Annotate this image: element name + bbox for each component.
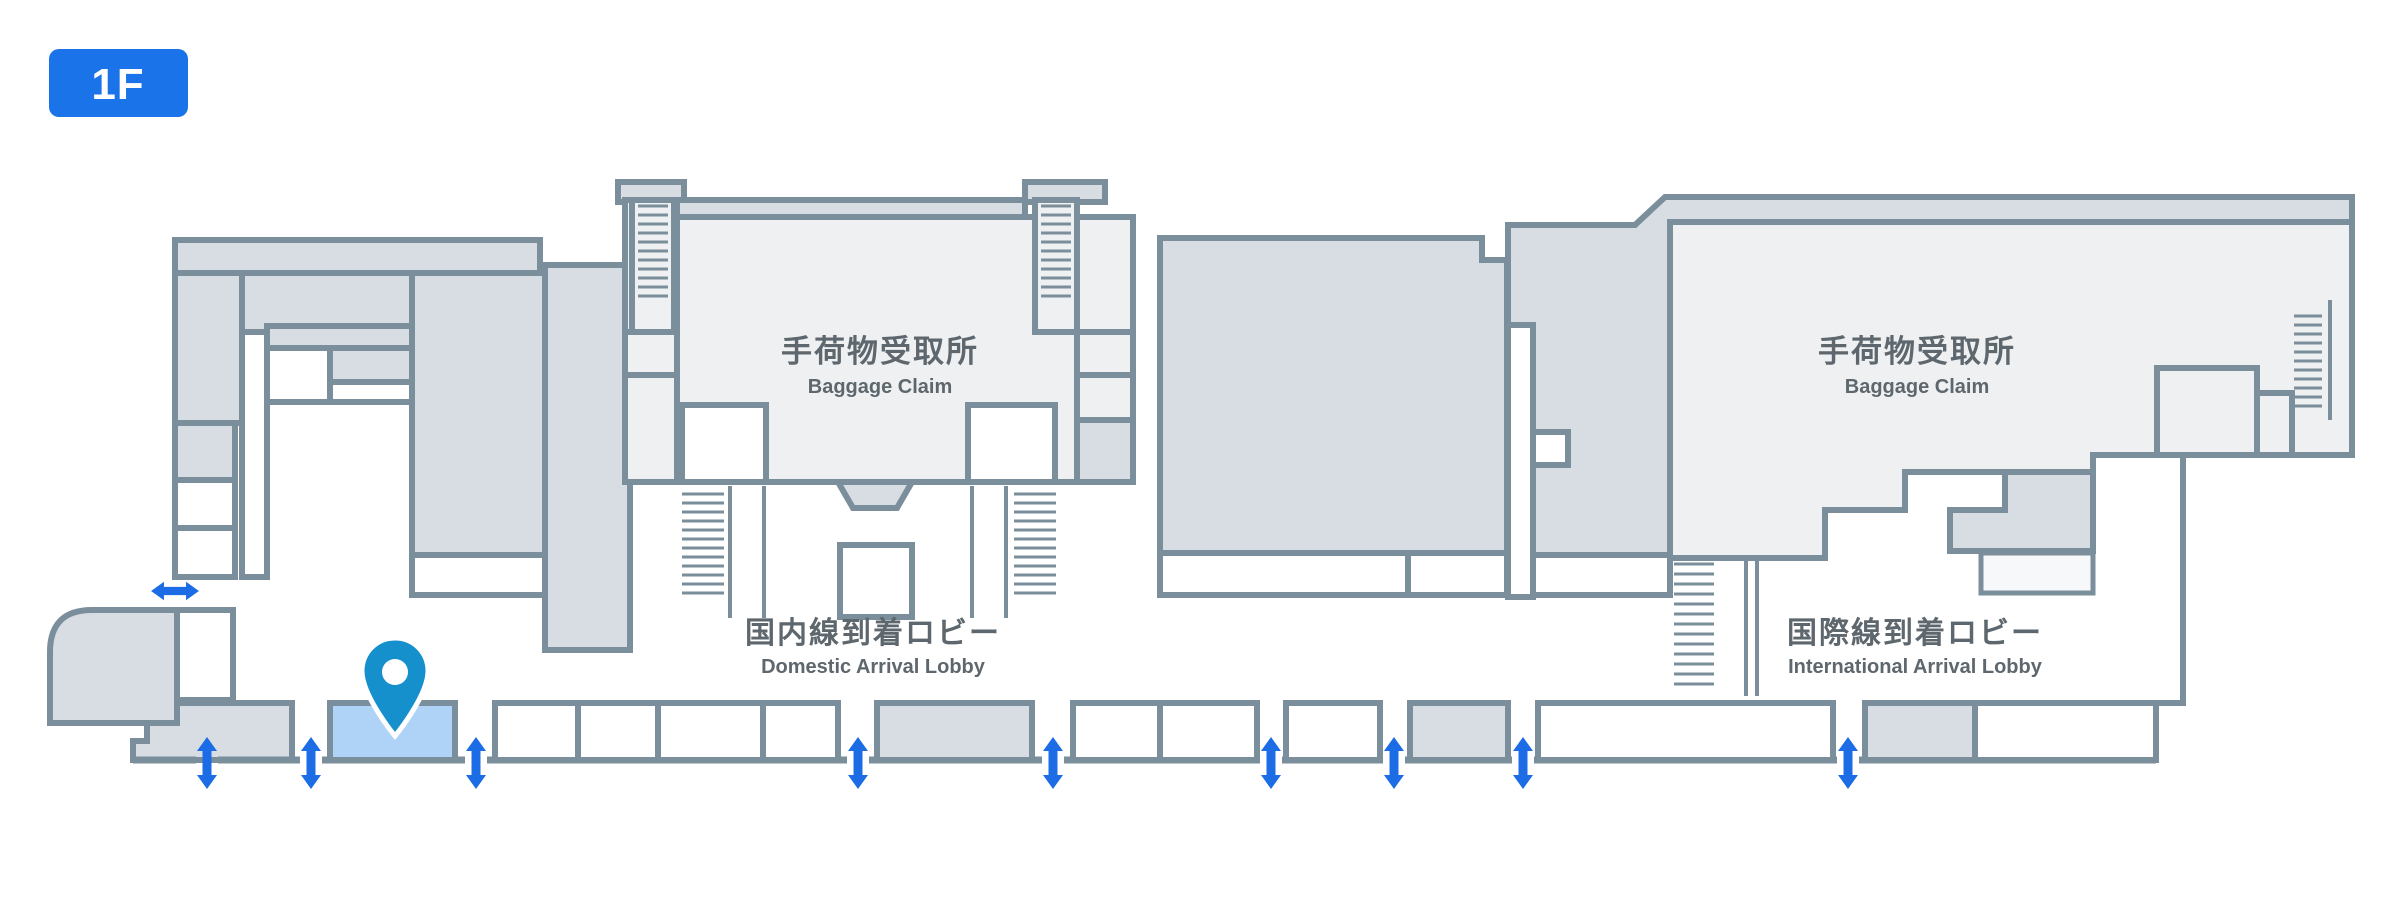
west-room-2 bbox=[330, 382, 412, 402]
stairs-domestic-right-rails bbox=[972, 486, 1006, 618]
entrance-arrow-icon bbox=[1384, 737, 1404, 789]
stairs-domestic-left-steps bbox=[682, 494, 724, 593]
booth-2 bbox=[495, 703, 838, 760]
west-wing bbox=[50, 240, 630, 760]
entrance-arrow-icon bbox=[1261, 737, 1281, 789]
entrance-arrow-icon bbox=[301, 737, 321, 789]
booth-5 bbox=[1286, 703, 1380, 760]
booth-3 bbox=[877, 703, 1032, 760]
entrance-arrow-icon bbox=[848, 737, 868, 789]
escalator-right-shaft bbox=[1035, 200, 1077, 332]
stairs-international-left bbox=[1674, 558, 1757, 696]
booth-7 bbox=[1538, 703, 1833, 760]
entrance-arrow-icon bbox=[1513, 737, 1533, 789]
stairs-international-left-rails bbox=[1746, 558, 1757, 696]
right-column-cell-dark bbox=[1077, 420, 1133, 482]
center-service-block bbox=[1160, 238, 1507, 595]
west-band-room bbox=[412, 555, 545, 595]
international-lobby-label-en: International Arrival Lobby bbox=[1788, 656, 2043, 678]
floor-badge-label: 1F bbox=[91, 60, 144, 109]
west-wing-mid-cell bbox=[330, 348, 412, 382]
west-wing-upper-band2 bbox=[267, 326, 412, 348]
domestic-baggage-label-jp: 手荷物受取所 bbox=[781, 334, 979, 369]
entrance-arrow-icon bbox=[466, 737, 486, 789]
escalator-left bbox=[632, 200, 674, 332]
international-baggage-label-jp: 手荷物受取所 bbox=[1818, 334, 2016, 369]
booth-8 bbox=[1865, 703, 1975, 760]
west-left-cell-2 bbox=[175, 528, 235, 577]
stairs-domestic-right bbox=[972, 486, 1056, 618]
booth-9 bbox=[1975, 703, 2156, 760]
domestic-room-box-left bbox=[682, 405, 766, 482]
west-room-1 bbox=[267, 348, 330, 402]
stairs-domestic-left-rails bbox=[730, 486, 764, 618]
east-outer-wall bbox=[2156, 455, 2183, 757]
location-pin-hole bbox=[382, 659, 408, 685]
east-band-room bbox=[1533, 555, 1670, 595]
center-block bbox=[1160, 238, 1507, 553]
intl-room-box-1 bbox=[2157, 368, 2257, 455]
side-entrance-arrow-icon bbox=[151, 582, 199, 600]
west-wing-block-east bbox=[545, 265, 630, 650]
escalator-left-shaft bbox=[632, 200, 674, 332]
lobby-kiosk bbox=[840, 545, 912, 617]
booth-6 bbox=[1410, 703, 1508, 760]
west-entry-room bbox=[177, 610, 233, 700]
floor-map-page: 手荷物受取所 Baggage Claim 手荷物受取所 Baggage Clai… bbox=[0, 0, 2400, 904]
east-corridor bbox=[1508, 325, 1533, 597]
intl-room-box-2 bbox=[2257, 393, 2292, 455]
booth-row bbox=[330, 703, 2156, 760]
escalator-right bbox=[1035, 200, 1077, 332]
international-lobby-label-jp: 国際線到着ロビー bbox=[1787, 616, 2043, 650]
west-corridor bbox=[242, 332, 267, 577]
international-baggage-label-en: Baggage Claim bbox=[1845, 376, 1989, 398]
stairs-domestic-right-steps bbox=[1014, 494, 1056, 593]
west-wing-left-cell-dark bbox=[175, 423, 235, 480]
stairs-international-left-steps bbox=[1674, 564, 1714, 684]
east-step-strip bbox=[1981, 553, 2093, 593]
domestic-baggage-label-en: Baggage Claim bbox=[808, 376, 952, 398]
west-wing-top-band bbox=[175, 240, 540, 273]
east-step-block bbox=[1950, 472, 2093, 551]
stairs-domestic-left bbox=[682, 486, 764, 618]
domestic-lobby-label-jp: 国内線到着ロビー bbox=[745, 616, 1001, 650]
domestic-room-box-right bbox=[968, 405, 1055, 482]
carousel-exit bbox=[838, 482, 912, 508]
rounded-corner-room bbox=[50, 610, 177, 723]
center-block-band bbox=[1160, 553, 1507, 595]
floor-selector-badge[interactable]: 1F bbox=[49, 49, 188, 117]
west-wing-left-column bbox=[175, 273, 242, 423]
booth-4 bbox=[1073, 703, 1257, 760]
domestic-baggage-complex: 手荷物受取所 Baggage Claim bbox=[618, 182, 1133, 618]
east-small-room bbox=[1533, 432, 1568, 465]
entrance-arrow-icon bbox=[1043, 737, 1063, 789]
domestic-lobby-label-en: Domestic Arrival Lobby bbox=[761, 656, 986, 678]
west-wing-block-mid bbox=[412, 273, 545, 555]
entrance-arrow-icon bbox=[1838, 737, 1858, 789]
west-left-cell-1 bbox=[175, 480, 235, 528]
